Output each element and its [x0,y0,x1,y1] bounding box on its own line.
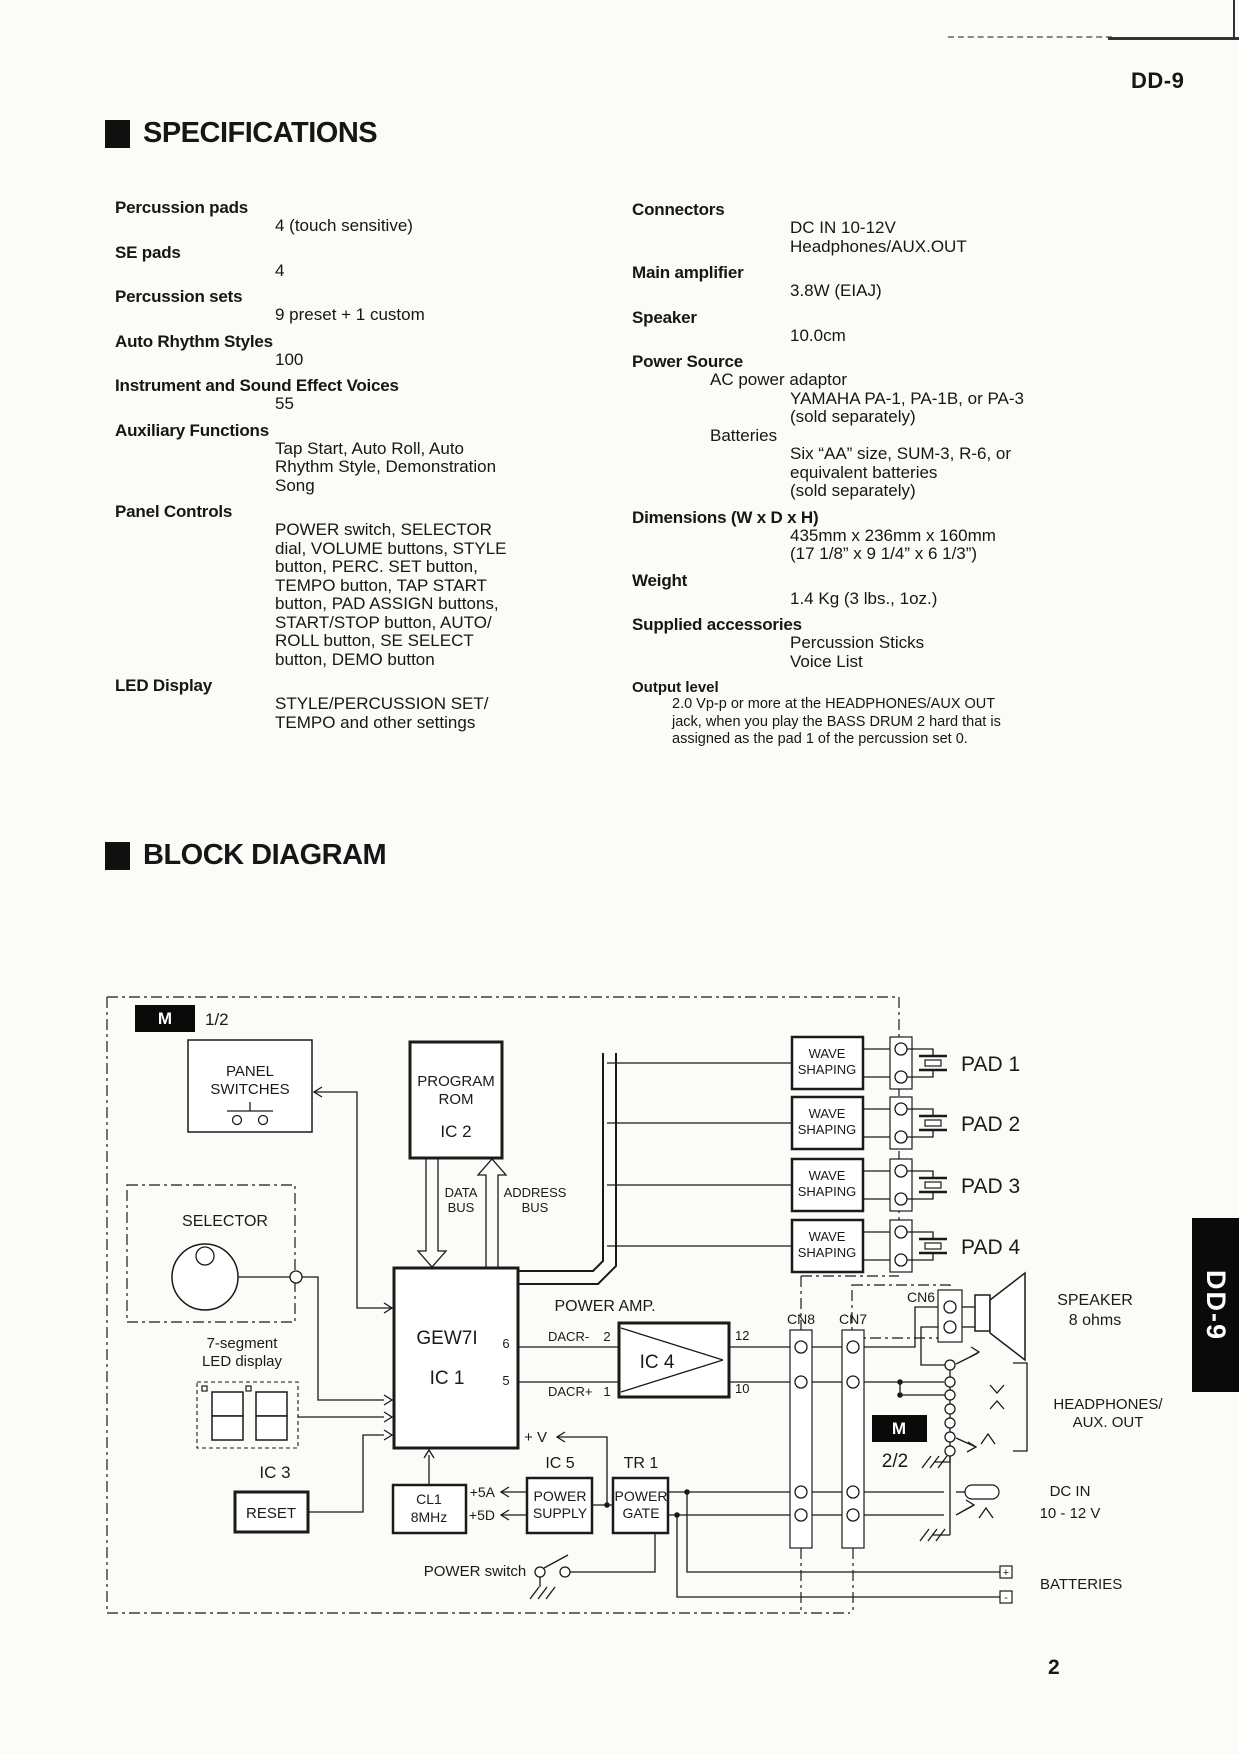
panel-switches-block: PANEL SWITCHES [188,1040,312,1132]
spec-column-right: Connectors DC IN 10-12V Headphones/AUX.O… [632,201,1142,757]
spec-value: YAMAHA PA-1, PA-1B, or PA-3 (sold separa… [790,390,1142,427]
seven-segment-label: LED display [202,1353,283,1370]
side-tab-label: DD-9 [1200,1269,1231,1340]
spec-value: 10.0cm [790,327,1142,346]
dc-in-jack: DC IN 10 - 12 V [965,1483,1100,1522]
spec-sub-label: Batteries [710,427,1142,446]
spec-value: 4 [275,262,555,281]
ic3-label: IC 3 [259,1463,290,1482]
spec-row-se-pads: SE pads 4 [115,244,555,281]
bus-labels: DATA BUS ADDRESS BUS [445,1185,567,1215]
batteries-label: BATTERIES [1040,1576,1122,1593]
spec-label: Power Source [632,353,1142,371]
page-corner-vertical-line [1233,0,1235,39]
wave-shaping-row-4: WAVE SHAPING PAD 4 [792,1220,1020,1272]
seven-segment-label: 7-segment [207,1335,279,1352]
pin-number-12: 12 [735,1328,749,1343]
spec-label: SE pads [115,244,555,262]
pin-number-5: 5 [502,1373,509,1388]
side-tab-model: DD-9 [1192,1218,1239,1392]
program-rom-label: ROM [439,1091,474,1108]
program-rom-label: PROGRAM [417,1073,495,1090]
selector-label: SELECTOR [182,1213,268,1230]
board-marker-1: M 1/2 [135,1005,229,1032]
clock-cl1-block: CL1 8MHz [393,1485,466,1533]
spec-row-connectors: Connectors DC IN 10-12V Headphones/AUX.O… [632,201,1142,256]
spec-label: Instrument and Sound Effect Voices [115,377,555,395]
battery-plus-terminal: + [1003,1567,1009,1579]
wave-shaping-row-2: WAVE SHAPING PAD 2 [792,1097,1020,1149]
spec-label: Dimensions (W x D x H) [632,509,1142,527]
pin-number-2: 2 [603,1329,610,1344]
heading-square-icon [105,120,130,148]
spec-value: POWER switch, SELECTOR dial, VOLUME butt… [275,521,555,669]
page-corner-dashed-line [948,36,1112,38]
spec-label: Auto Rhythm Styles [115,333,555,351]
power-switch-label: POWER switch [424,1563,527,1580]
spec-label: Percussion sets [115,288,555,306]
page-corner-solid-line [1108,37,1239,40]
gew7i-label: GEW7I [416,1328,477,1349]
pad-label: PAD 4 [961,1236,1020,1259]
block-diagram: PANEL SWITCHES PROGRAM ROM IC 2 DATA BUS… [95,895,1185,1625]
spec-row-percussion-sets: Percussion sets 9 preset + 1 custom [115,288,555,325]
block-diagram-title: BLOCK DIAGRAM [143,839,386,872]
cn7-label: CN7 [839,1311,867,1327]
address-bus-label: ADDRESS [504,1185,567,1200]
reset-ic3-block: IC 3 RESET [235,1463,308,1532]
cn6-label: CN6 [907,1289,935,1305]
pad-label: PAD 3 [961,1175,1020,1198]
output-level-text: 2.0 Vp-p or more at the HEADPHONES/AUX O… [672,696,1142,749]
dacr-plus-label: DACR+ [548,1384,592,1399]
data-bus-label: BUS [448,1200,475,1215]
cl1-label: 8MHz [411,1509,448,1525]
block-diagram-heading: BLOCK DIAGRAM [105,839,386,872]
spec-row-weight: Weight 1.4 Kg (3 lbs., 1oz.) [632,572,1142,609]
spec-label: Output level [632,679,1142,696]
dacr-minus-label: DACR- [548,1329,589,1344]
spec-row-output-level: Output level 2.0 Vp-p or more at the HEA… [632,679,1142,749]
dc-in-label: DC IN [1050,1483,1091,1500]
spec-value: 9 preset + 1 custom [275,306,555,325]
wave-shaping-label: WAVE [809,1229,846,1244]
connector-cn8: CN8 [787,1311,815,1548]
spec-label: Supplied accessories [632,616,1142,634]
wave-shaping-label: WAVE [809,1046,846,1061]
spec-sub-label: AC power adaptor [710,371,1142,390]
spec-label: Speaker [632,309,1142,327]
ic2-label: IC 2 [440,1122,471,1141]
headphones-jack: HEADPHONES/ AUX. OUT [945,1360,1163,1456]
power-gate-label: POWER [615,1488,668,1504]
wave-shaping-row-1: WAVE SHAPING PAD 1 [792,1037,1020,1089]
pad-label: PAD 1 [961,1053,1020,1076]
pin-number-1: 1 [603,1384,610,1399]
battery-terminals: + - BATTERIES [1000,1566,1122,1604]
address-bus-label: BUS [522,1200,549,1215]
power-gate-block: TR 1 POWER GATE [613,1455,668,1533]
heading-square-icon [105,842,130,870]
reset-label: RESET [246,1505,296,1522]
gew7i-ic1-block: GEW7I IC 1 6 5 [394,1268,518,1448]
panel-switches-label: SWITCHES [210,1081,289,1098]
pin-number-10: 10 [735,1381,749,1396]
spec-label: LED Display [115,677,555,695]
panel-switches-label: PANEL [226,1063,274,1080]
marker-page: 1/2 [205,1010,229,1029]
selector-dial: SELECTOR [172,1213,302,1310]
spec-row-led-display: LED Display STYLE/PERCUSSION SET/ TEMPO … [115,677,555,732]
tr1-label: TR 1 [624,1455,659,1472]
plus-v-label: + V [524,1429,547,1446]
spec-row-auto-rhythm-styles: Auto Rhythm Styles 100 [115,333,555,370]
marker-page: 2/2 [882,1451,908,1472]
headphones-label: AUX. OUT [1073,1414,1144,1431]
marker-m: M [892,1419,906,1438]
spec-value: 3.8W (EIAJ) [790,282,1142,301]
ic1-label: IC 1 [430,1368,465,1389]
specifications-title: SPECIFICATIONS [143,117,377,150]
wave-shaping-label: WAVE [809,1168,846,1183]
spec-label: Weight [632,572,1142,590]
spec-row-panel-controls: Panel Controls POWER switch, SELECTOR di… [115,503,555,669]
spec-row-power-source: Power Source AC power adaptor YAMAHA PA-… [632,353,1142,501]
pin-number-6: 6 [502,1336,509,1351]
spec-row-main-amplifier: Main amplifier 3.8W (EIAJ) [632,264,1142,301]
spec-row-auxiliary-functions: Auxiliary Functions Tap Start, Auto Roll… [115,422,555,496]
battery-minus-terminal: - [1004,1592,1008,1604]
spec-column-left: Percussion pads 4 (touch sensitive) SE p… [115,199,555,740]
speaker-label: SPEAKER [1057,1292,1133,1309]
program-rom-block: PROGRAM ROM IC 2 [410,1042,502,1158]
power-gate-label: GATE [622,1505,659,1521]
spec-row-dimensions: Dimensions (W x D x H) 435mm x 236mm x 1… [632,509,1142,564]
power-amp-label: POWER AMP. [554,1298,655,1315]
spec-label: Panel Controls [115,503,555,521]
speaker-icon: SPEAKER 8 ohms [975,1273,1133,1360]
power-supply-label: POWER [534,1488,587,1504]
spec-value: 1.4 Kg (3 lbs., 1oz.) [790,590,1142,609]
spec-row-voices: Instrument and Sound Effect Voices 55 [115,377,555,414]
spec-value: Six “AA” size, SUM-3, R-6, or equivalent… [790,445,1142,501]
spec-value: Percussion Sticks Voice List [790,634,1142,671]
ic5-label: IC 5 [545,1455,574,1472]
spec-value: 100 [275,351,555,370]
model-number: DD-9 [1131,68,1184,94]
board-marker-2: M 2/2 [872,1415,927,1472]
plus-5d-label: +5D [469,1507,495,1523]
pad-label: PAD 2 [961,1113,1020,1136]
data-bus-label: DATA [445,1185,478,1200]
spec-value: 4 (touch sensitive) [275,217,555,236]
spec-label: Connectors [632,201,1142,219]
manual-page: DD-9 SPECIFICATIONS Percussion pads 4 (t… [0,0,1239,1754]
marker-m: M [158,1009,172,1028]
spec-value: Tap Start, Auto Roll, Auto Rhythm Style,… [275,440,555,496]
speaker-ohms-label: 8 ohms [1069,1312,1121,1329]
wave-shaping-label: WAVE [809,1106,846,1121]
wave-shaping-label: SHAPING [798,1245,857,1260]
spec-row-percussion-pads: Percussion pads 4 (touch sensitive) [115,199,555,236]
power-amp-ic4-block: POWER AMP. IC 4 DACR- 2 DACR+ 1 12 10 [548,1298,749,1399]
power-supply-label: SUPPLY [533,1505,588,1521]
spec-label: Auxiliary Functions [115,422,555,440]
plus-5a-label: +5A [470,1484,496,1500]
spec-row-supplied-accessories: Supplied accessories Percussion Sticks V… [632,616,1142,671]
dc-in-label: 10 - 12 V [1040,1505,1101,1522]
spec-value: STYLE/PERCUSSION SET/ TEMPO and other se… [275,695,555,732]
wave-shaping-label: SHAPING [798,1062,857,1077]
spec-value: 55 [275,395,555,414]
spec-label: Main amplifier [632,264,1142,282]
page-number: 2 [1048,1656,1060,1680]
ic4-label: IC 4 [640,1352,675,1373]
spec-value: DC IN 10-12V Headphones/AUX.OUT [790,219,1142,256]
specifications-heading: SPECIFICATIONS [105,117,377,150]
power-switch: POWER switch [424,1555,570,1580]
spec-value: 435mm x 236mm x 160mm (17 1/8” x 9 1/4” … [790,527,1142,564]
seven-segment-display: 7-segment LED display [197,1335,298,1448]
cn8-label: CN8 [787,1311,815,1327]
wave-shaping-label: SHAPING [798,1184,857,1199]
spec-label: Percussion pads [115,199,555,217]
wave-shaping-row-3: WAVE SHAPING PAD 3 [792,1159,1020,1211]
wave-shaping-label: SHAPING [798,1122,857,1137]
connector-cn7: CN7 [839,1311,867,1548]
cl1-label: CL1 [416,1491,442,1507]
spec-row-speaker: Speaker 10.0cm [632,309,1142,346]
headphones-label: HEADPHONES/ [1053,1396,1163,1413]
